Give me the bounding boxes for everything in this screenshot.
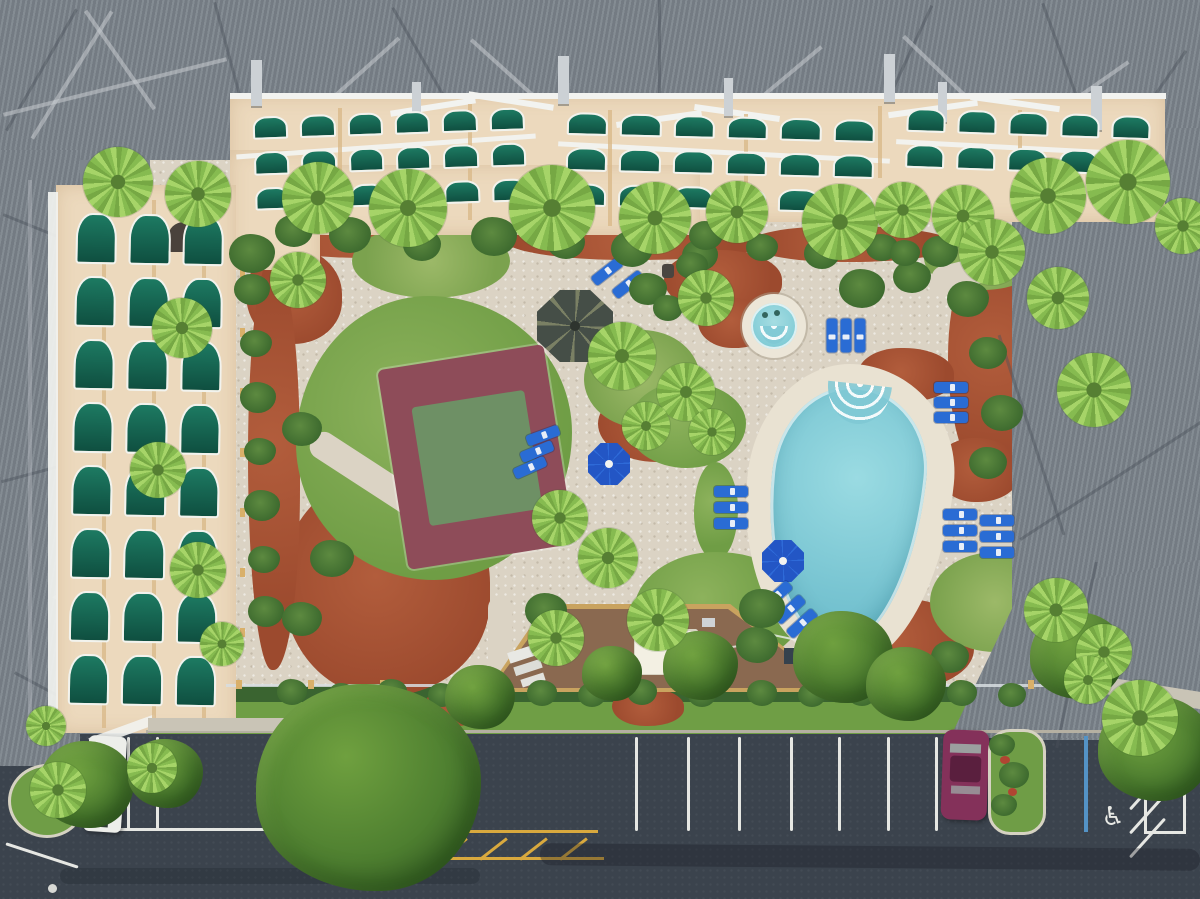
equipment xyxy=(702,618,715,627)
stall-line xyxy=(635,737,638,831)
pool-lounger xyxy=(934,412,968,423)
pool-lounger xyxy=(855,319,866,353)
palm-tree xyxy=(282,162,354,234)
window xyxy=(956,146,996,171)
palm-tree xyxy=(706,181,768,243)
chimney xyxy=(251,60,262,106)
window xyxy=(567,112,609,136)
fence-post xyxy=(236,680,242,689)
shrub xyxy=(244,490,280,521)
window xyxy=(832,154,874,178)
palm-tree xyxy=(152,298,212,358)
bather xyxy=(774,310,780,316)
palm-tree xyxy=(1010,158,1086,234)
window xyxy=(394,111,430,136)
shade-tree xyxy=(445,665,515,729)
palm-tree xyxy=(127,743,177,793)
palm-tree xyxy=(30,762,86,818)
stall-line xyxy=(887,737,890,831)
window xyxy=(129,214,171,266)
palm-tree xyxy=(802,184,878,260)
window xyxy=(73,339,115,391)
stall-line xyxy=(838,737,841,831)
pool-lounger xyxy=(934,382,968,393)
window xyxy=(905,144,945,169)
palm-tree xyxy=(1102,680,1178,756)
window xyxy=(566,147,608,171)
window xyxy=(174,656,216,708)
window xyxy=(1009,111,1049,136)
stall-line xyxy=(687,737,690,831)
palm-tree xyxy=(622,402,670,450)
roof-streak xyxy=(28,180,32,740)
window xyxy=(833,119,875,143)
palm-tree xyxy=(1086,140,1170,224)
palm-tree xyxy=(165,161,231,227)
shrub xyxy=(998,683,1026,707)
accessible-line xyxy=(1084,736,1088,832)
grill xyxy=(662,264,674,278)
window xyxy=(727,116,769,140)
window xyxy=(443,144,479,169)
car-roof xyxy=(950,755,982,782)
umbrella-top xyxy=(779,557,787,565)
window xyxy=(673,115,715,139)
shrub xyxy=(999,762,1029,788)
palm-tree xyxy=(26,706,66,746)
bather xyxy=(762,312,768,318)
window xyxy=(620,113,662,137)
shrub xyxy=(947,680,977,706)
umbrella-top xyxy=(605,460,613,468)
handicap-symbol: ♿ xyxy=(1096,800,1130,834)
walk-post xyxy=(240,568,245,577)
palm-tree xyxy=(619,182,691,254)
palm-tree xyxy=(528,610,584,666)
window xyxy=(780,118,822,142)
palm-tree xyxy=(83,147,153,217)
palm-tree xyxy=(1064,656,1112,704)
pool-lounger xyxy=(943,541,977,552)
palm-tree xyxy=(130,442,186,498)
pool-lounger xyxy=(714,486,748,497)
car-windshield xyxy=(950,743,981,753)
window xyxy=(442,109,478,134)
window xyxy=(672,150,714,174)
window xyxy=(74,276,116,328)
window xyxy=(300,114,336,139)
window xyxy=(179,404,221,456)
shrub xyxy=(947,281,989,317)
window xyxy=(122,592,164,644)
pool-lounger xyxy=(714,502,748,513)
shrub xyxy=(248,596,284,627)
shrub xyxy=(527,680,557,706)
shade-tree xyxy=(256,684,481,891)
window xyxy=(779,153,821,177)
car-rear-glass xyxy=(951,785,980,794)
shade-tree xyxy=(866,647,946,721)
palm-tree xyxy=(627,589,689,651)
fence-post xyxy=(308,680,314,689)
window xyxy=(71,465,113,517)
window xyxy=(619,149,661,173)
palm-tree xyxy=(1027,267,1089,329)
window xyxy=(75,213,117,265)
window xyxy=(489,107,525,132)
window xyxy=(1060,113,1100,138)
window xyxy=(68,654,110,706)
palm-tree xyxy=(578,528,638,588)
window xyxy=(444,180,480,205)
shade-tree xyxy=(582,646,642,701)
palm-tree xyxy=(588,322,656,390)
palm-tree xyxy=(1057,353,1131,427)
window xyxy=(70,528,112,580)
pool-lounger xyxy=(841,319,852,353)
window xyxy=(121,655,163,707)
window xyxy=(72,402,114,454)
shrub xyxy=(981,395,1023,431)
pool-lounger xyxy=(980,515,1014,526)
palm-tree xyxy=(1024,578,1088,642)
chimney xyxy=(884,54,895,102)
pool-lounger xyxy=(943,525,977,536)
palm-tree xyxy=(678,270,734,326)
shrub xyxy=(747,680,777,706)
pool-lounger xyxy=(714,518,748,529)
scene: ♿ xyxy=(0,0,1200,899)
palm-tree xyxy=(532,490,588,546)
palm-tree xyxy=(689,409,735,455)
window xyxy=(396,146,432,171)
left-edge-canopy xyxy=(48,192,58,737)
gazebo-pole xyxy=(570,321,580,331)
pool-lounger xyxy=(980,531,1014,542)
fence-post xyxy=(1028,680,1034,689)
palm-tree xyxy=(875,182,931,238)
window xyxy=(254,151,290,176)
shrub xyxy=(736,627,778,663)
palm-tree xyxy=(509,165,595,251)
window xyxy=(348,148,384,173)
palm-tree xyxy=(200,622,244,666)
palm-tree xyxy=(270,252,326,308)
stall-line xyxy=(935,737,938,831)
stall-line xyxy=(738,737,741,831)
shrub xyxy=(890,240,920,266)
window xyxy=(252,116,288,141)
pool-lounger xyxy=(943,509,977,520)
chimney xyxy=(558,56,569,104)
parapet xyxy=(230,93,1166,99)
stall-line xyxy=(790,737,793,831)
window xyxy=(957,110,997,135)
window xyxy=(347,112,383,137)
window xyxy=(726,151,768,175)
window xyxy=(1111,115,1151,140)
window xyxy=(490,143,526,168)
window xyxy=(123,529,165,581)
window xyxy=(69,591,111,643)
pool-lounger xyxy=(827,319,838,353)
window xyxy=(906,108,946,133)
palm-tree xyxy=(170,542,226,598)
pavement-dot xyxy=(48,884,57,893)
shrub xyxy=(240,382,276,413)
shrub xyxy=(234,274,270,305)
pool-lounger xyxy=(980,547,1014,558)
palm-tree xyxy=(959,219,1025,285)
palm-tree xyxy=(369,169,447,247)
pool-lounger xyxy=(934,397,968,408)
